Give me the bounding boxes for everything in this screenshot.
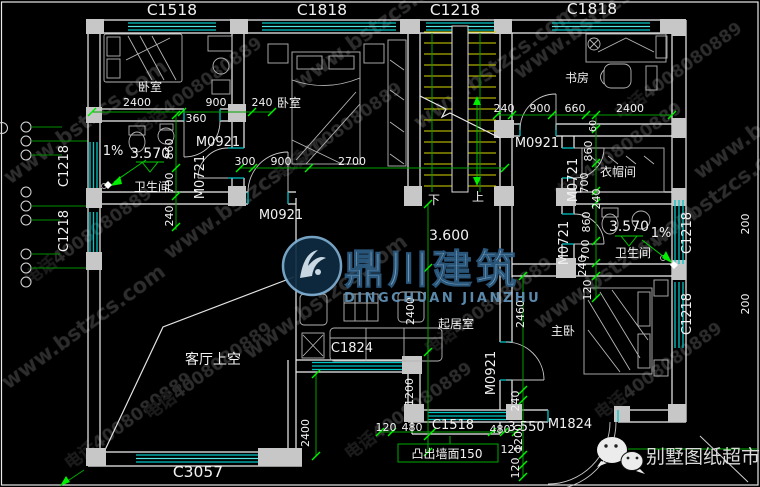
door-label: M0921	[196, 135, 240, 150]
dim: 120	[501, 443, 522, 456]
window-label: C1518	[147, 1, 197, 19]
dim: 900	[206, 96, 227, 109]
level-label: 3.600	[429, 228, 469, 244]
room-label-living: 起居室	[438, 316, 474, 331]
stair-stringer	[452, 26, 468, 192]
door-label: M0921	[259, 208, 303, 223]
room-label-bedroom-left: 卧室	[138, 79, 162, 94]
note-protruding-wall: 凸出墙面150	[412, 447, 483, 461]
dim: 240	[590, 189, 603, 210]
slope-label: 1%	[103, 144, 124, 159]
door-label: M0721	[193, 155, 208, 199]
dim: 300	[235, 155, 256, 168]
dim: 240	[509, 391, 522, 412]
dim: 240	[163, 206, 176, 227]
dim: 660	[565, 102, 586, 115]
window-label: C1218	[57, 210, 72, 252]
logo-name-en: DINGCHUAN JIANZHU	[344, 291, 541, 306]
dim: 1200	[403, 378, 416, 406]
dim: 120	[581, 280, 594, 301]
dim: 860	[163, 139, 176, 160]
room-label-master: 主卧	[551, 324, 575, 338]
logo-name-cn: 鼎川建筑	[344, 247, 520, 293]
dim: 480	[490, 423, 511, 436]
dim: 60	[588, 120, 599, 132]
dim: 900	[530, 102, 551, 115]
level-label: 3.570	[609, 219, 649, 235]
door-label: M1824	[548, 417, 592, 432]
dim: 240	[494, 102, 515, 115]
window-label: C1218	[680, 293, 695, 335]
window-label: C3057	[173, 463, 223, 481]
door-label: M0921	[515, 136, 559, 151]
dim: 700	[163, 173, 176, 194]
dim: 360	[186, 112, 207, 125]
dim: 900	[271, 155, 292, 168]
room-label-study: 书房	[565, 70, 589, 85]
room-label-cloakroom: 衣帽间	[600, 164, 636, 179]
dim: 860	[582, 141, 595, 162]
window-label: C1218	[430, 1, 480, 19]
door-label: M0721	[557, 221, 572, 265]
stair-up-label: 上	[472, 190, 484, 204]
dim: 2400	[299, 419, 312, 447]
room-label-bedroom-middle: 卧室	[277, 95, 301, 110]
dim: 240	[576, 256, 589, 277]
room-label-void: 客厅上空	[185, 351, 241, 368]
slope-label: 1%	[651, 226, 672, 241]
dim: 2700	[338, 155, 366, 168]
dim: 2400	[616, 102, 644, 115]
dim: 2400	[123, 96, 151, 109]
window-label: C1218	[57, 145, 72, 187]
dim: 240	[252, 96, 273, 109]
dim: 480	[402, 421, 423, 434]
window-label: C1824	[331, 341, 373, 356]
dim: 200	[739, 294, 752, 315]
room-label-bathroom-right: 卫生间	[615, 246, 651, 260]
cad-floor-plan-screenshot: www.bstzcs.com 电话4008080889 www.bstzcs.c…	[0, 0, 760, 487]
floor-plan-drawing: www.bstzcs.com 电话4008080889 www.bstzcs.c…	[0, 0, 760, 487]
window-label: C1518	[432, 418, 474, 433]
dim: 120	[376, 421, 397, 434]
dim: 120	[509, 458, 522, 479]
door-label: M0921	[484, 351, 499, 395]
brand-name: 别墅图纸超市	[646, 446, 760, 468]
window-label: C1818	[567, 0, 617, 18]
dim: 200	[739, 214, 752, 235]
stair-down-label: 下	[428, 193, 440, 207]
window-label: C1218	[680, 212, 695, 254]
dim: 860	[580, 212, 593, 233]
window-label: C1818	[297, 1, 347, 19]
